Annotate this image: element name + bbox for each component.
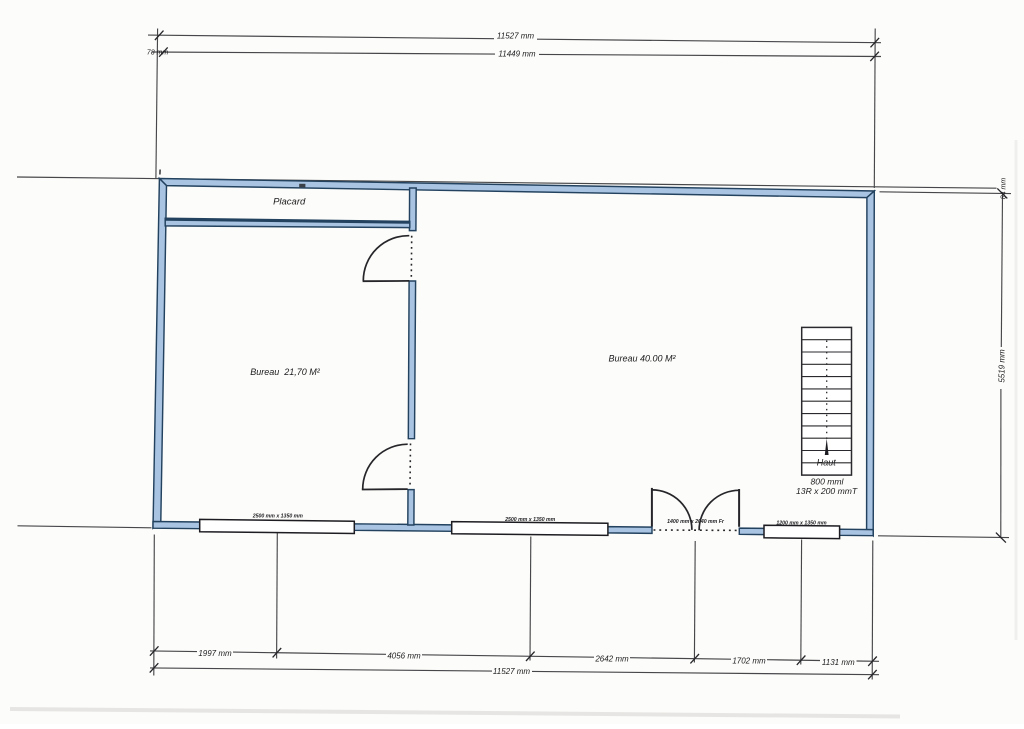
svg-text:13R x 200 mmT: 13R x 200 mmT xyxy=(796,486,858,496)
svg-text:2642 mm: 2642 mm xyxy=(594,655,629,664)
svg-text:2500 mm x 1350 mm: 2500 mm x 1350 mm xyxy=(252,514,304,520)
svg-text:Bureau 40.00 M²: Bureau 40.00 M² xyxy=(608,354,676,364)
svg-text:11527 mm: 11527 mm xyxy=(497,31,535,40)
svg-text:2500 mm x 1350 mm: 2500 mm x 1350 mm xyxy=(504,517,556,523)
svg-text:1997 mm: 1997 mm xyxy=(198,649,232,658)
svg-text:11527 mm: 11527 mm xyxy=(493,667,531,676)
svg-text:84 mm: 84 mm xyxy=(1001,178,1008,200)
svg-text:1200 mm x 1350 mm: 1200 mm x 1350 mm xyxy=(776,520,827,526)
svg-text:Haut: Haut xyxy=(817,457,837,467)
svg-text:Bureau 21,70 M²: Bureau 21,70 M² xyxy=(250,367,321,377)
svg-text:1702 mm: 1702 mm xyxy=(732,657,766,666)
svg-text:78 mm: 78 mm xyxy=(147,50,169,57)
svg-text:Placard: Placard xyxy=(273,196,306,207)
svg-text:11449 mm: 11449 mm xyxy=(498,50,536,59)
svg-text:1400 mm x 2040 mm Fr: 1400 mm x 2040 mm Fr xyxy=(667,519,725,525)
svg-text:1131 mm: 1131 mm xyxy=(822,658,855,667)
svg-text:4056 mm: 4056 mm xyxy=(387,652,421,661)
svg-text:5519 mm: 5519 mm xyxy=(997,349,1006,383)
